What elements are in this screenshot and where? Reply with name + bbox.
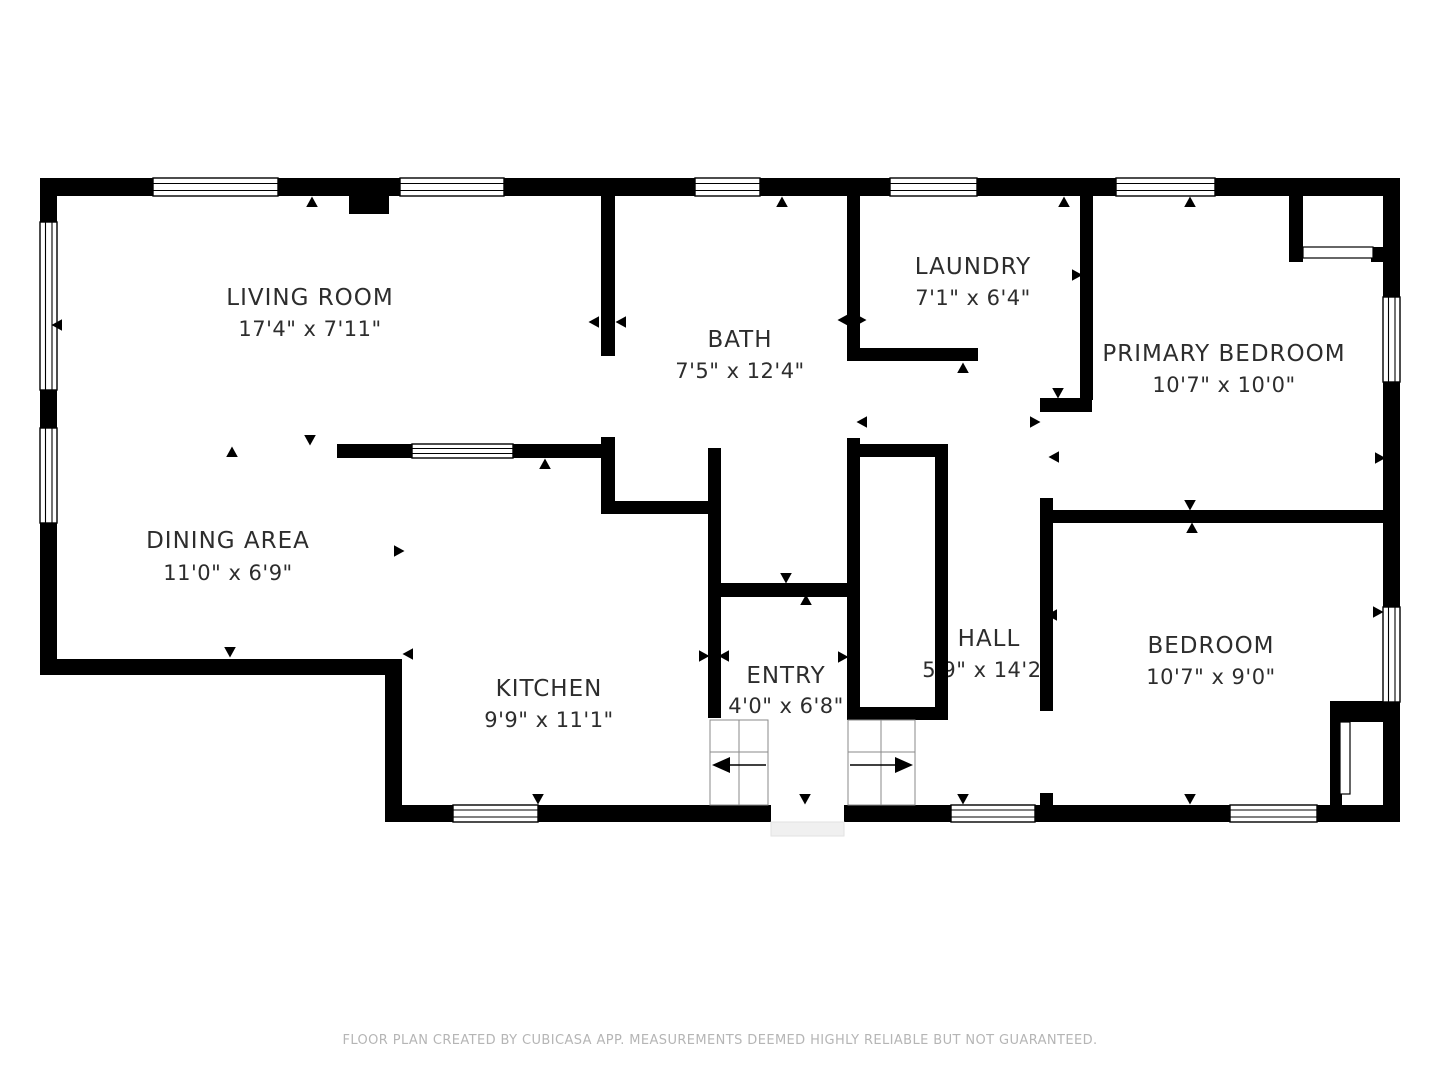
wall-living-room-notch <box>349 196 389 214</box>
room-name: LAUNDRY <box>915 254 1031 280</box>
wall-laundry-bottom <box>847 348 978 361</box>
room-name: ENTRY <box>746 663 825 689</box>
entry-steps <box>710 720 915 805</box>
room-label-bedroom: BEDROOM 10'7" x 9'0" <box>1146 633 1275 689</box>
window <box>1230 805 1317 822</box>
room-dimensions: 10'7" x 9'0" <box>1146 665 1275 689</box>
room-name: HALL <box>958 626 1021 652</box>
room-dimensions: 7'5" x 12'4" <box>675 359 804 383</box>
exterior-step <box>771 822 844 836</box>
wall-entry-top <box>720 583 848 597</box>
wall-bath-left-upper <box>601 196 615 356</box>
wall-bedroom-divider <box>1040 510 1400 523</box>
room-label-living-room: LIVING ROOM 17'4" x 7'11" <box>226 285 394 341</box>
wall-laundry-left <box>847 196 860 361</box>
room-dimensions: 4'0" x 6'8" <box>728 694 844 718</box>
window <box>1383 607 1400 702</box>
marker-arrow-icon <box>838 314 849 326</box>
marker-arrow-icon <box>1058 197 1070 208</box>
marker-arrow-icon <box>403 648 414 660</box>
marker-arrow-icon <box>304 435 316 446</box>
marker-arrow-icon <box>776 197 788 208</box>
wall-primary-bedroom-left <box>1080 196 1093 400</box>
room-dimensions: 17'4" x 7'11" <box>238 317 381 341</box>
bedroom-closet-door <box>1340 722 1350 794</box>
wall-dining-bottom <box>40 659 402 675</box>
wall-primary-bedroom-jog <box>1040 398 1092 412</box>
marker-arrow-icon <box>1049 451 1060 463</box>
marker-arrow-icon <box>306 197 318 208</box>
room-label-primary-bedroom: PRIMARY BEDROOM 10'7" x 10'0" <box>1102 341 1345 397</box>
marker-arrow-icon <box>857 416 868 428</box>
marker-arrow-icon <box>1186 523 1198 534</box>
marker-arrow-icon <box>856 314 867 326</box>
marker-arrow-icon <box>616 316 627 328</box>
wall-hall-right <box>1040 498 1053 711</box>
marker-arrow-icon <box>532 794 544 805</box>
wall-entry-left <box>708 448 721 718</box>
wall-hall-closet-bottom <box>847 707 948 720</box>
wall-kitchen-left <box>385 659 402 822</box>
marker-arrow-icon <box>799 794 811 805</box>
entry-door-opening <box>771 805 844 822</box>
wall-hall-closet-top <box>847 444 948 457</box>
wall-hall-right-stub <box>1040 793 1053 810</box>
room-dimensions: 7'1" x 6'4" <box>915 286 1031 310</box>
marker-arrow-icon <box>226 447 238 458</box>
wall-exterior-right <box>1383 178 1400 822</box>
room-name: BEDROOM <box>1147 633 1274 659</box>
room-dimensions: 11'0" x 6'9" <box>163 561 292 585</box>
step-grid-left <box>710 720 768 805</box>
room-name: DINING AREA <box>146 528 310 554</box>
marker-arrow-icon <box>539 459 551 470</box>
window <box>951 805 1035 822</box>
marker-arrow-icon <box>1052 388 1064 399</box>
room-name: KITCHEN <box>496 676 603 702</box>
room-dimensions: 10'7" x 10'0" <box>1152 373 1295 397</box>
window <box>890 178 977 196</box>
floor-plan-canvas: LIVING ROOM 17'4" x 7'11" BATH 7'5" x 12… <box>0 0 1440 1080</box>
room-label-laundry: LAUNDRY 7'1" x 6'4" <box>915 254 1031 310</box>
marker-arrow-icon <box>1030 416 1041 428</box>
footer-disclaimer: FLOOR PLAN CREATED BY CUBICASA APP. MEAS… <box>0 1033 1440 1048</box>
primary-closet-door <box>1303 247 1373 258</box>
window <box>1383 297 1400 382</box>
marker-arrow-icon <box>957 794 969 805</box>
marker-arrow-icon <box>780 573 792 584</box>
room-label-kitchen: KITCHEN 9'9" x 11'1" <box>484 676 613 732</box>
marker-arrow-icon <box>1373 606 1384 618</box>
window <box>412 444 513 458</box>
window <box>453 805 538 822</box>
wall-bath-bottom <box>601 501 720 514</box>
wall-primary-closet-stub <box>1289 196 1303 262</box>
window <box>1116 178 1215 196</box>
room-label-bath: BATH 7'5" x 12'4" <box>675 327 804 383</box>
room-name: LIVING ROOM <box>226 285 394 311</box>
window <box>40 222 57 390</box>
window <box>40 428 57 523</box>
marker-arrow-icon <box>224 647 236 658</box>
room-name: PRIMARY BEDROOM <box>1102 341 1345 367</box>
marker-arrow-icon <box>957 363 969 374</box>
marker-arrow-icon <box>1184 500 1196 511</box>
marker-arrow-icon <box>699 650 710 662</box>
room-label-entry: ENTRY 4'0" x 6'8" <box>728 663 844 718</box>
room-dimensions: 9'9" x 11'1" <box>484 708 613 732</box>
wall-hall-closet-right <box>935 444 948 720</box>
marker-arrow-icon <box>838 651 849 663</box>
marker-arrow-icon <box>1184 197 1196 208</box>
marker-arrow-icon <box>394 545 405 557</box>
marker-arrow-icon <box>589 316 600 328</box>
marker-arrow-icon <box>1184 794 1196 805</box>
window <box>400 178 504 196</box>
wall-hall-closet-left <box>847 438 860 720</box>
window <box>695 178 760 196</box>
window <box>153 178 278 196</box>
room-name: BATH <box>707 327 772 353</box>
step-grid-right <box>848 720 915 805</box>
room-label-dining-area: DINING AREA 11'0" x 6'9" <box>146 528 310 585</box>
